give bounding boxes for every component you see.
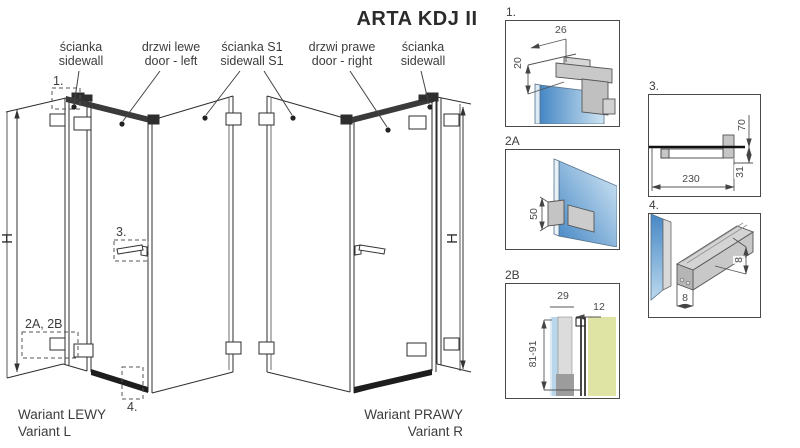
technical-diagram-page: ARTA KDJ II ściankasidewall drzwi lewedo… [0, 0, 800, 448]
detail-1-box: 26 20 [505, 20, 620, 127]
dim-50: 50 [528, 207, 540, 221]
variant-right-caption: Wariant PRAWYVariant R [340, 406, 463, 440]
detail-4-threshold-drawing [649, 214, 758, 315]
variant-left-caption: Wariant LEWYVariant L [18, 406, 106, 440]
detail-2b-box: 29 12 81-91 [505, 283, 620, 399]
height-label-right: H [444, 233, 461, 244]
dim-12: 12 [592, 301, 606, 313]
dim-8-height: 8 [733, 256, 745, 264]
dim-20: 20 [512, 56, 524, 70]
dim-31: 31 [734, 165, 746, 179]
dim-26: 26 [554, 24, 568, 36]
dim-230: 230 [681, 173, 701, 185]
label-sidewall-left: ściankasidewall [31, 40, 131, 68]
detail-1-label: 1. [506, 5, 516, 19]
callout-1-label: 1. [53, 74, 63, 88]
detail-2b-label: 2B [505, 268, 520, 282]
detail-2a-clamp-drawing [506, 150, 617, 247]
callout-3-label: 3. [116, 225, 126, 239]
label-sidewall-right: ściankasidewall [373, 40, 473, 68]
detail-4-label: 4. [649, 198, 659, 212]
callout-2ab-label: 2A, 2B [25, 317, 63, 331]
detail-3-handle-drawing [649, 95, 758, 194]
detail-1-hinge-drawing [506, 21, 617, 124]
detail-2a-box: 50 [505, 149, 620, 250]
dim-8-width: 8 [681, 292, 689, 304]
label-sidewall-s1: ścianka S1sidewall S1 [202, 40, 302, 68]
dim-81-91: 81-91 [527, 340, 539, 369]
dim-70: 70 [736, 118, 748, 132]
detail-2a-label: 2A [505, 134, 520, 148]
height-label-left: H [0, 233, 16, 244]
dim-29: 29 [556, 290, 570, 302]
page-title: ARTA KDJ II [332, 8, 502, 31]
detail-3-box: 70 31 230 [648, 94, 761, 197]
detail-3-label: 3. [649, 79, 659, 93]
callout-4-label: 4. [127, 400, 137, 414]
detail-4-box: 8 8 [648, 213, 761, 318]
